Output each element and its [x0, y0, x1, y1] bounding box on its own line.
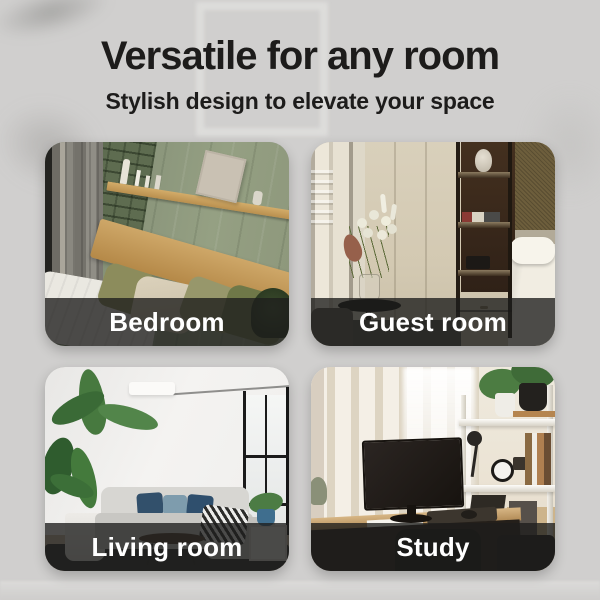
white-pot [495, 393, 515, 417]
room-card-grid: Bedroom [45, 142, 555, 571]
black-pot [519, 383, 547, 411]
card-label: Living room [92, 532, 243, 563]
small-vase [252, 190, 263, 205]
card-label-bar: Guest room [311, 298, 555, 346]
monitor-base [390, 514, 432, 523]
shelf-board [458, 270, 510, 276]
clock-device [466, 256, 490, 269]
card-label: Study [396, 532, 469, 563]
white-flowers [357, 218, 367, 228]
room-card-bedroom: Bedroom [45, 142, 289, 346]
plant-leaf [95, 399, 160, 435]
small-plant [311, 477, 327, 505]
leaning-canvas [195, 150, 246, 203]
room-card-living-room: Living room [45, 367, 289, 571]
white-pillow [510, 237, 555, 264]
air-conditioner [129, 382, 175, 395]
card-label-bar: Study [311, 523, 555, 571]
card-label: Bedroom [109, 307, 225, 338]
window-blinds [311, 170, 333, 230]
room-card-guest-room: Guest room [311, 142, 555, 346]
books [525, 433, 551, 485]
shelf-board [458, 222, 510, 228]
candle [144, 175, 150, 187]
shelf-board [459, 419, 555, 426]
stacked-books [462, 212, 500, 222]
header: Versatile for any room Stylish design to… [0, 34, 600, 115]
candle [154, 175, 161, 190]
blue-pillow [163, 495, 187, 515]
room-card-study: Study [311, 367, 555, 571]
card-label-bar: Bedroom [45, 298, 289, 346]
vase [120, 159, 131, 185]
shelf-board [459, 485, 555, 492]
ceiling-track [173, 385, 289, 396]
shelf-board [458, 172, 510, 178]
faded-floor-band [0, 581, 600, 600]
card-label-bar: Living room [45, 523, 289, 571]
wood-board [513, 411, 555, 417]
mouse [461, 510, 477, 519]
card-label: Guest room [359, 307, 507, 338]
page-subtitle: Stylish design to elevate your space [0, 88, 600, 115]
lamp-arm [471, 443, 479, 477]
round-vase [475, 149, 492, 172]
page-title: Versatile for any room [0, 34, 600, 79]
alarm-clock [491, 459, 514, 482]
monitor-screen [362, 437, 464, 510]
candle [134, 170, 140, 186]
